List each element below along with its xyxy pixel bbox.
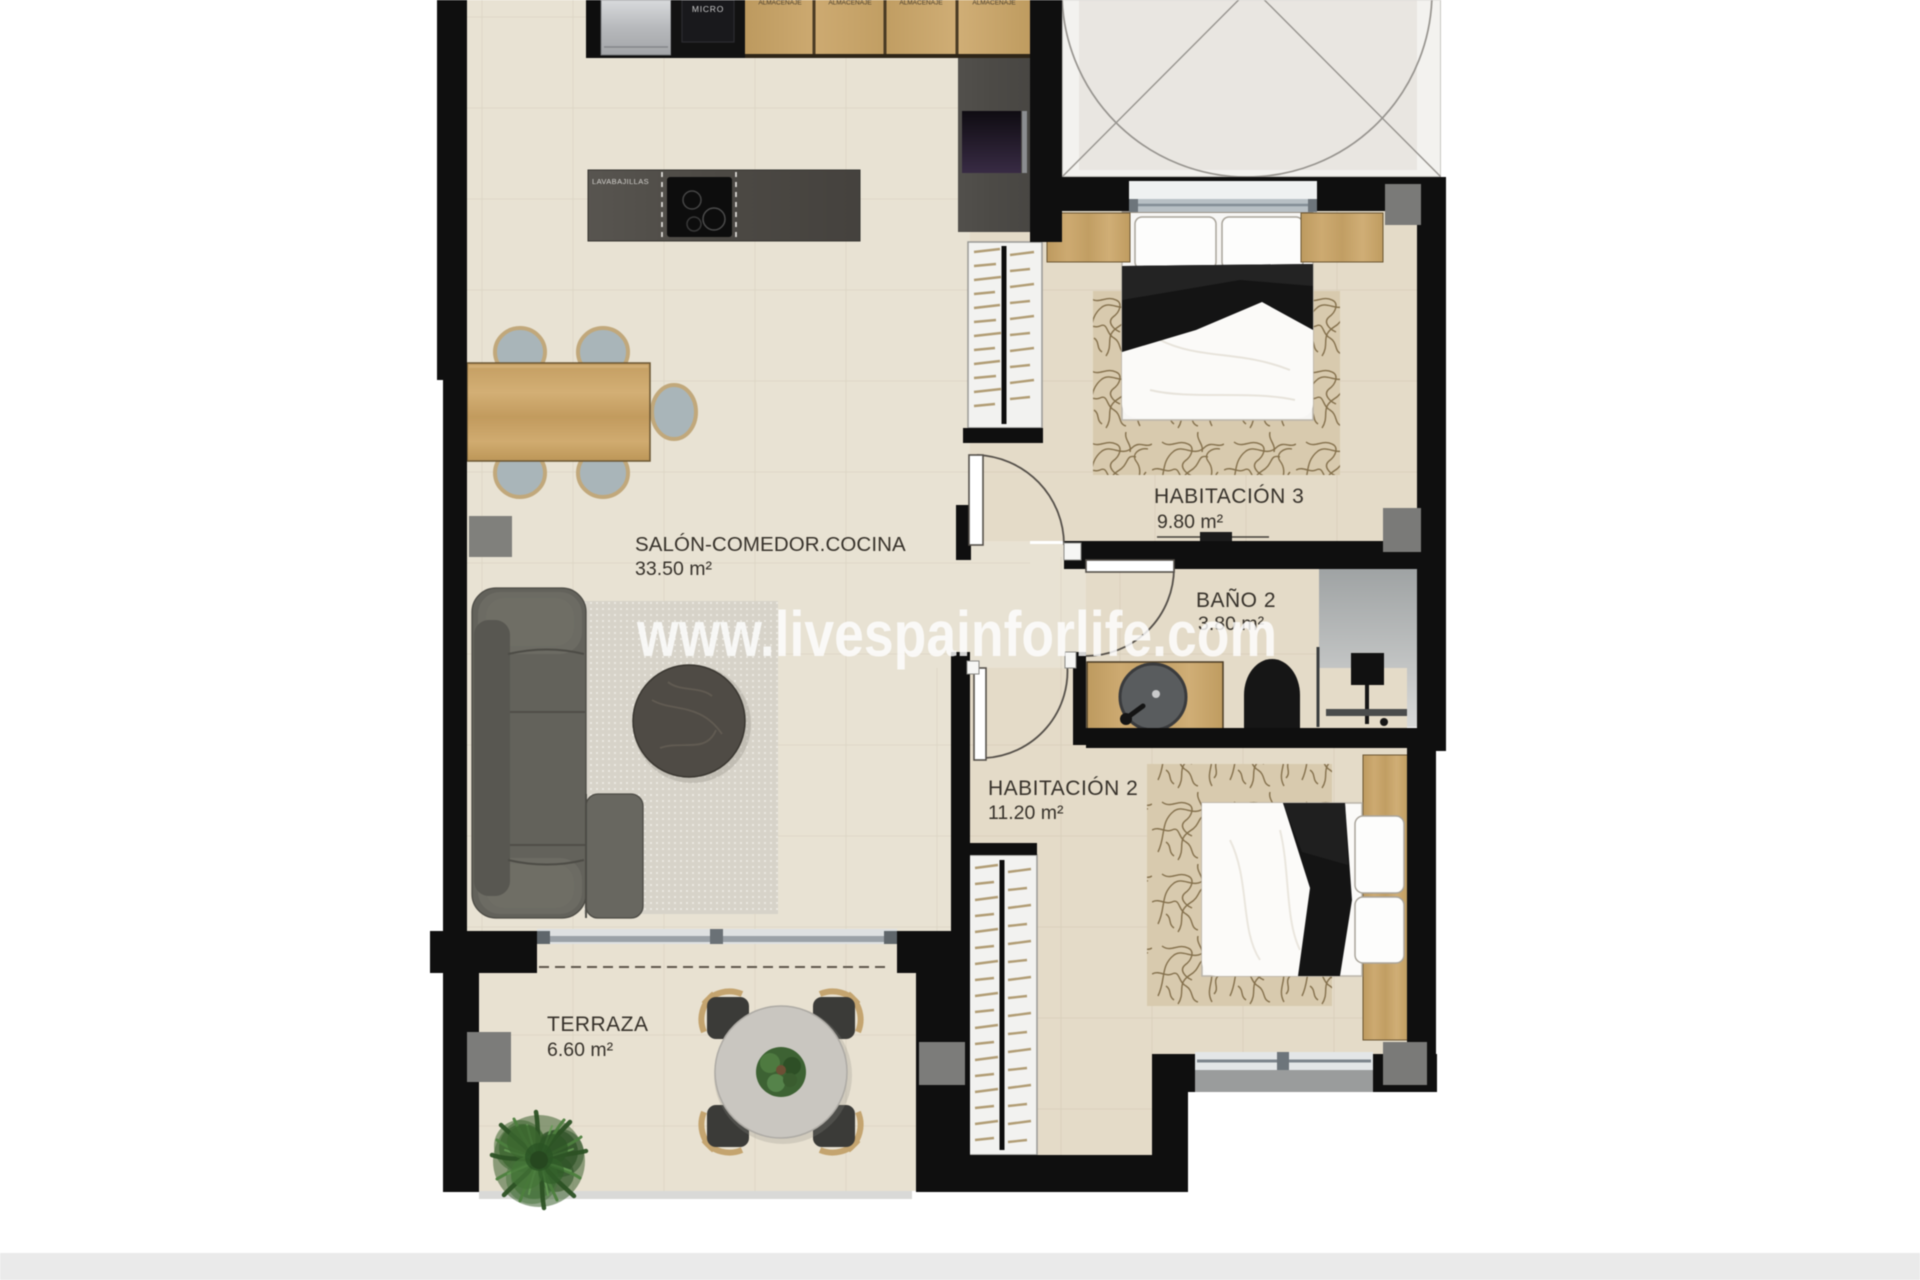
svg-text:SALÓN-COMEDOR.COCINA: SALÓN-COMEDOR.COCINA: [635, 533, 906, 556]
svg-text:www.livespainforlife.com: www.livespainforlife.com: [636, 598, 1277, 670]
svg-text:ALMACENAJE: ALMACENAJE: [972, 0, 1016, 7]
svg-text:MICRO: MICRO: [692, 4, 724, 14]
svg-text:11.20 m²: 11.20 m²: [988, 802, 1064, 824]
svg-text:ALMACENAJE: ALMACENAJE: [758, 0, 802, 7]
svg-text:33.50 m²: 33.50 m²: [635, 558, 712, 580]
svg-text:6.60 m²: 6.60 m²: [547, 1039, 614, 1061]
svg-text:LAVABAJILLAS: LAVABAJILLAS: [592, 177, 649, 186]
svg-text:ALMACENAJE: ALMACENAJE: [899, 0, 943, 7]
svg-text:TERRAZA: TERRAZA: [547, 1013, 649, 1036]
svg-text:ALMACENAJE: ALMACENAJE: [828, 0, 872, 7]
svg-text:9.80 m²: 9.80 m²: [1157, 511, 1224, 533]
svg-text:HABITACIÓN 2: HABITACIÓN 2: [988, 777, 1138, 800]
svg-text:HABITACIÓN 3: HABITACIÓN 3: [1154, 485, 1304, 508]
